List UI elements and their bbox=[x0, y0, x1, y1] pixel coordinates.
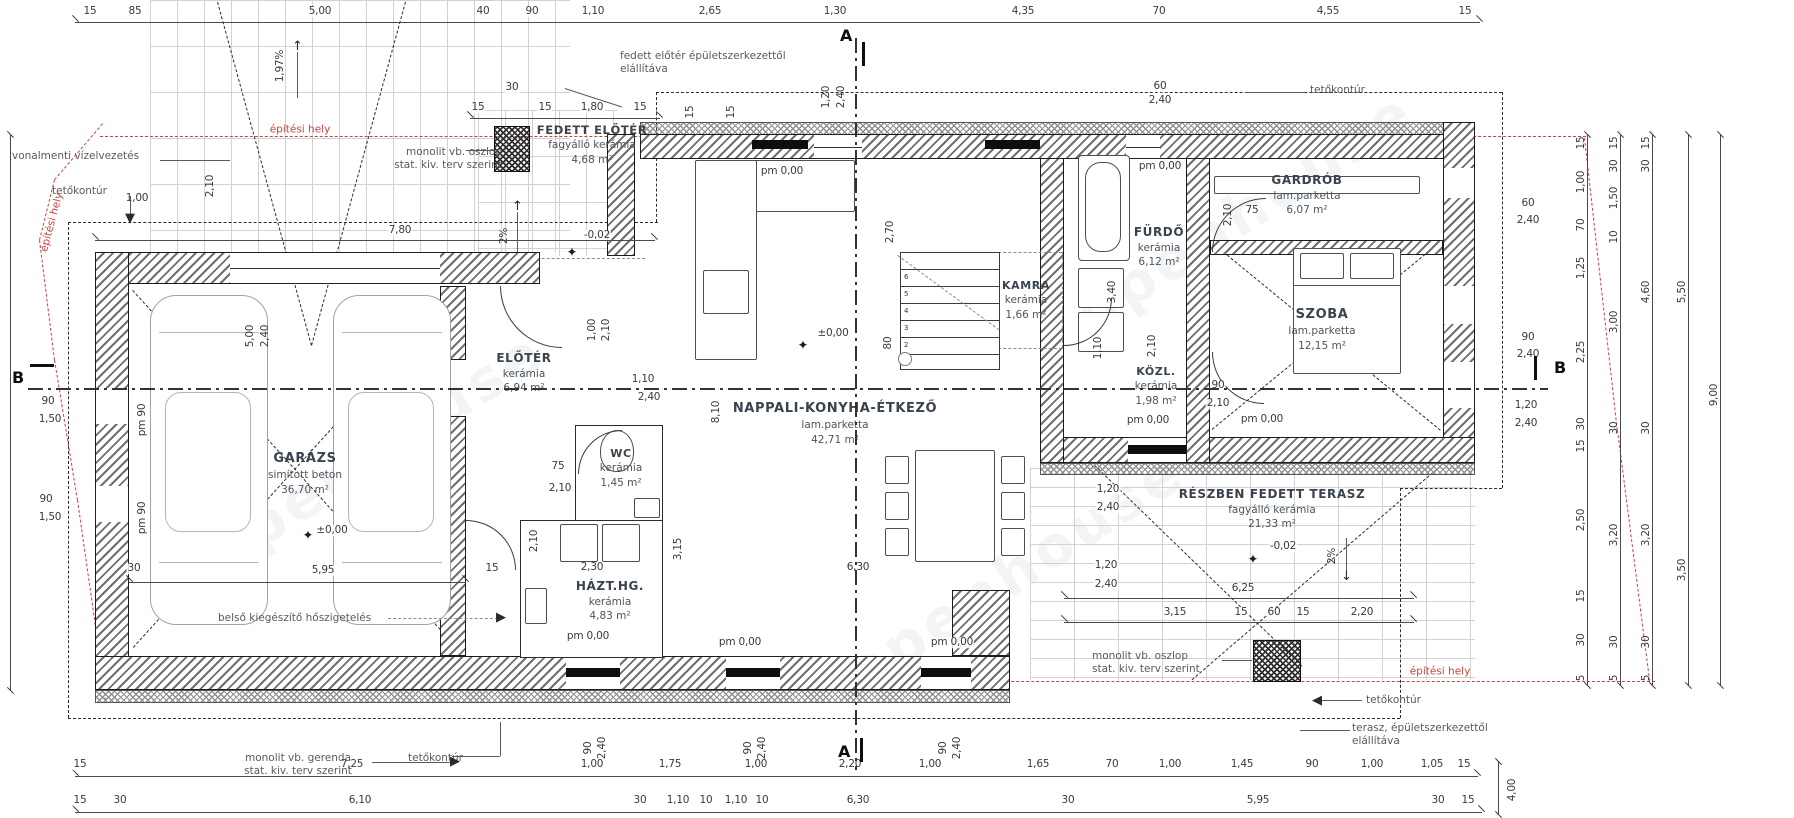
dim-label: 30 bbox=[1641, 160, 1652, 173]
dim-label: 1,10 bbox=[666, 795, 691, 806]
level-mark: pm 0,00 bbox=[718, 637, 762, 648]
dim-label: 5,95 bbox=[1246, 795, 1271, 806]
dim-label: 15 bbox=[1234, 607, 1249, 618]
dim-chain-garage bbox=[129, 582, 466, 583]
dryer bbox=[602, 524, 640, 562]
dim-label: 6,30 bbox=[846, 795, 871, 806]
dim-chain-right-1 bbox=[1587, 135, 1588, 685]
dim-label: 1,80 bbox=[580, 102, 605, 113]
dim-label: 6,25 bbox=[1231, 583, 1256, 594]
dim-label: 75 bbox=[1245, 205, 1260, 216]
dim-chain-top2 bbox=[470, 118, 660, 119]
dim-chain-right-2 bbox=[1620, 135, 1621, 685]
terrace-pillar bbox=[1253, 640, 1301, 682]
dim-label: 1,00 bbox=[587, 319, 598, 342]
dim-label: 3,40 bbox=[1107, 281, 1118, 304]
dim-label: 30 bbox=[1609, 160, 1620, 173]
level-mark: pm 0,00 bbox=[930, 637, 974, 648]
chair bbox=[1001, 456, 1025, 484]
dim-label: 1,00 bbox=[125, 193, 150, 204]
dim-label: 15 bbox=[538, 102, 553, 113]
dim-label: 2,70 bbox=[885, 221, 896, 244]
dim-label: 1,10 bbox=[631, 374, 656, 385]
annotation-roof-contour: tetőkontúr bbox=[1310, 84, 1365, 97]
dim-label: 1,00 bbox=[918, 759, 943, 770]
annotation-drainage: vonalmenti vízelvezetés bbox=[12, 150, 139, 163]
dim-label: 1,10 bbox=[581, 6, 606, 17]
dim-label: 2,20 bbox=[1350, 607, 1375, 618]
dim-label: 1,05 bbox=[1420, 759, 1445, 770]
dim-label: 2,10 bbox=[548, 483, 573, 494]
dim-label: 30 bbox=[127, 563, 142, 574]
dim-chain-400 bbox=[1498, 762, 1499, 814]
room-label-garage: GARÁZSsimított beton36,70 m² bbox=[268, 450, 342, 498]
insulation-szoba-south bbox=[1040, 463, 1475, 475]
dim-label: 2,40 bbox=[1096, 502, 1121, 512]
dim-label: 2,40 bbox=[952, 737, 963, 760]
dim-label: 5 bbox=[1609, 675, 1620, 681]
dim-label: 2,10 bbox=[205, 175, 216, 198]
dim-label: 2,40 bbox=[260, 325, 271, 348]
dim-label: 15 bbox=[1458, 6, 1473, 17]
chair bbox=[885, 492, 909, 520]
dim-label: 90 bbox=[1521, 332, 1536, 343]
dim-label: 3,20 bbox=[1641, 524, 1652, 547]
car-2 bbox=[333, 295, 451, 625]
dim-chain-right-5 bbox=[1720, 135, 1721, 685]
boiler bbox=[525, 588, 547, 624]
room-label-bathroom: FÜRDŐkerámia6,12 m² bbox=[1134, 224, 1184, 270]
dim-label: 85 bbox=[128, 6, 143, 17]
dim-label: 10 bbox=[1609, 231, 1620, 244]
dim-label: 1,50 bbox=[1609, 187, 1620, 210]
window-east-60 bbox=[1443, 168, 1475, 198]
lintel-south-3 bbox=[921, 668, 971, 677]
annotation-column-2: monolit vb. oszlopstat. kiv. terv szerin… bbox=[1092, 650, 1222, 676]
dim-label: 30 bbox=[113, 795, 128, 806]
dim-label: 15 bbox=[685, 106, 696, 119]
level-mark: pm 0,00 bbox=[1240, 414, 1284, 425]
dim-label: 1,20 bbox=[1514, 400, 1539, 411]
section-line-a bbox=[855, 38, 857, 770]
roof-contour bbox=[1400, 488, 1502, 489]
dim-chain-terrace-1 bbox=[1064, 598, 1414, 599]
window-north-60 bbox=[1126, 134, 1160, 159]
dim-label: 4,35 bbox=[1011, 6, 1036, 17]
kitchen-counter bbox=[695, 160, 757, 360]
door-arc-entry bbox=[500, 286, 562, 348]
washer bbox=[560, 524, 598, 562]
dim-label: 15 bbox=[1457, 759, 1472, 770]
annotation-beam: monolit vb. gerendastat. kiv. terv szeri… bbox=[228, 752, 368, 778]
level-mark: pm 90 bbox=[137, 404, 148, 437]
lintel-entry bbox=[752, 140, 808, 149]
room-label-gardrob: GARDRÓBlam.parketta6,07 m² bbox=[1271, 172, 1342, 218]
dim-label: 15 bbox=[1609, 137, 1620, 150]
dim-label: 70 bbox=[1576, 219, 1587, 232]
dim-label: 1,50 bbox=[38, 512, 63, 523]
dim-label: 2,40 bbox=[1094, 579, 1119, 590]
lintel-south-2 bbox=[726, 668, 780, 677]
level-mark: ±0,00 bbox=[315, 525, 348, 536]
dim-label: 40 bbox=[476, 6, 491, 17]
dim-label: 2,40 bbox=[757, 737, 768, 760]
chair bbox=[1001, 528, 1025, 556]
slope-label: 1,97% bbox=[275, 50, 286, 82]
dim-label: 15 bbox=[1576, 440, 1587, 453]
dim-label: 15 bbox=[83, 6, 98, 17]
dim-label: 2,40 bbox=[1516, 215, 1541, 226]
chair bbox=[1001, 492, 1025, 520]
dim-label: 30 bbox=[1641, 422, 1652, 435]
dim-label: 6,30 bbox=[846, 562, 871, 573]
level-mark: -0,02 bbox=[1269, 541, 1297, 552]
kitchen-sink bbox=[703, 270, 749, 314]
dim-label: 90 bbox=[583, 742, 594, 755]
insulation-south bbox=[95, 690, 1010, 703]
dim-label: 2,40 bbox=[836, 86, 847, 109]
dim-label: 3,50 bbox=[1677, 559, 1688, 582]
dim-chain-top bbox=[75, 22, 1480, 23]
dim-label: 30 bbox=[1609, 636, 1620, 649]
dim-label: 90 bbox=[1305, 759, 1320, 770]
dim-label: 15 bbox=[633, 102, 648, 113]
dim-label: 90 bbox=[938, 742, 949, 755]
dim-label: 30 bbox=[1576, 634, 1587, 647]
dim-label: 2,30 bbox=[580, 562, 605, 573]
dim-label: 5,00 bbox=[308, 6, 333, 17]
window-east-90 bbox=[1443, 286, 1475, 324]
room-label-covered-porch: FEDETT ELŐTÉRfagyálló kerámia4,68 m² bbox=[537, 122, 647, 167]
chair bbox=[885, 456, 909, 484]
stair-newel bbox=[898, 352, 912, 366]
dim-label: 3,00 bbox=[1609, 311, 1620, 334]
dim-label: 4,55 bbox=[1316, 6, 1341, 17]
lintel-bath-door bbox=[985, 140, 1040, 149]
dim-label: 70 bbox=[1105, 759, 1120, 770]
section-marker-a: A bbox=[838, 742, 850, 761]
dim-label: 2,10 bbox=[1147, 335, 1158, 358]
annotation-terrace-offset: terasz, épületszerkezettőlelállítáva bbox=[1352, 722, 1522, 748]
dim-label: 1,50 bbox=[38, 414, 63, 425]
lintel-south-1 bbox=[566, 668, 620, 677]
dim-label: 1,45 bbox=[1230, 759, 1255, 770]
room-label-pantry: KAMRAkerámia1,66 m² bbox=[1002, 278, 1050, 323]
dim-label: 5 bbox=[1641, 675, 1652, 681]
site-boundary-line bbox=[1584, 138, 1618, 430]
dim-label: 30 bbox=[1061, 795, 1076, 806]
section-marker-a: A bbox=[840, 26, 852, 45]
roof-contour bbox=[68, 718, 1400, 719]
wall-szoba-south bbox=[1040, 437, 1475, 463]
dim-label: 1,00 bbox=[580, 759, 605, 770]
dim-label: 3,20 bbox=[1609, 524, 1620, 547]
dim-label: 90 bbox=[743, 742, 754, 755]
slope-label: 2% bbox=[499, 228, 510, 244]
level-mark: pm 90 bbox=[137, 502, 148, 535]
site-boundary-label: építési hely bbox=[270, 123, 331, 136]
dining-table bbox=[915, 450, 995, 562]
dim-label: 15 bbox=[471, 102, 486, 113]
dim-label: 1,65 bbox=[1026, 759, 1051, 770]
dim-label: 1,10 bbox=[724, 795, 749, 806]
dim-label: 2,40 bbox=[1148, 95, 1173, 106]
room-label-wc: WCkerámia1,45 m² bbox=[600, 446, 643, 491]
dim-label: 15 bbox=[1576, 137, 1587, 150]
wall-south bbox=[95, 656, 1010, 690]
dim-label: 1,20 bbox=[1094, 560, 1119, 571]
dim-label: 90 bbox=[525, 6, 540, 17]
window-west-2 bbox=[95, 486, 129, 522]
dim-chain-bottom-2 bbox=[75, 812, 1482, 813]
dim-label: 2,65 bbox=[698, 6, 723, 17]
site-boundary-label: építési hely bbox=[1410, 665, 1471, 678]
level-mark: pm 0,00 bbox=[760, 166, 804, 177]
dim-label: 30 bbox=[633, 795, 648, 806]
annotation-insulation: belső kiegészítő hőszigetelés bbox=[218, 612, 371, 625]
dim-label: 3,15 bbox=[673, 538, 684, 561]
section-marker-b: B bbox=[1554, 358, 1566, 377]
dim-chain-right-3 bbox=[1652, 135, 1653, 685]
chair bbox=[885, 528, 909, 556]
dim-label: 15 bbox=[485, 563, 500, 574]
door-arc-szoba bbox=[1212, 352, 1264, 404]
dim-label: 15 bbox=[1641, 137, 1652, 150]
room-label-corridor: KÖZL.kerámia1,98 m² bbox=[1135, 364, 1178, 409]
bathtub bbox=[1078, 155, 1130, 261]
dim-label: 1,00 bbox=[1158, 759, 1183, 770]
dim-label: 15 bbox=[1461, 795, 1476, 806]
kamra-outline bbox=[1062, 252, 1063, 348]
dim-label: 1,75 bbox=[658, 759, 683, 770]
dim-label: 2,10 bbox=[1223, 204, 1234, 227]
roof-contour bbox=[656, 92, 1502, 93]
dim-label: 1,20 bbox=[821, 86, 832, 109]
level-mark: pm 0,00 bbox=[1126, 415, 1170, 426]
dim-label: 5,50 bbox=[1677, 281, 1688, 304]
dim-label: 90 bbox=[39, 494, 54, 505]
dim-label: 3,15 bbox=[1163, 607, 1188, 618]
section-marker-b: B bbox=[12, 368, 24, 387]
dim-label: 9,00 bbox=[1709, 384, 1720, 407]
dim-chain-right-4 bbox=[1688, 135, 1689, 685]
level-mark: pm 0,00 bbox=[1138, 161, 1182, 172]
annotation-roof-contour: tetőkontúr bbox=[1366, 694, 1421, 707]
dim-label: 2,10 bbox=[601, 319, 612, 342]
dim-label: 4,00 bbox=[1507, 779, 1518, 802]
dim-label: 7,80 bbox=[388, 225, 413, 236]
dim-label: 15 bbox=[73, 795, 88, 806]
room-label-living: NAPPALI-KONYHA-ÉTKEZŐlam.parketta42,71 m… bbox=[733, 400, 937, 448]
dim-label: 1,00 bbox=[1360, 759, 1385, 770]
dim-label: 75 bbox=[551, 461, 566, 472]
dim-label: 2,40 bbox=[1514, 418, 1539, 429]
annotation-porch-offset: fedett előtér épületszerkezettőlelállítá… bbox=[620, 50, 820, 76]
dim-label: 1,10 bbox=[1093, 337, 1104, 360]
room-label-bedroom: SZOBAlam.parketta12,15 m² bbox=[1288, 306, 1355, 354]
dim-label: 30 bbox=[505, 82, 520, 93]
dim-chain-780 bbox=[95, 240, 655, 241]
dim-label: 2,25 bbox=[1576, 341, 1587, 364]
dim-label: 5,95 bbox=[311, 565, 336, 576]
garage-door bbox=[230, 252, 440, 284]
hand-basin bbox=[634, 498, 660, 518]
dim-label: 90 bbox=[41, 396, 56, 407]
dim-label: 5,00 bbox=[245, 325, 256, 348]
dim-label: 2,10 bbox=[1206, 398, 1231, 409]
site-boundary-line bbox=[54, 360, 78, 500]
dim-label: 2,10 bbox=[529, 530, 540, 553]
floor-plan-canvas: openhouse openhouse openhouse építési he… bbox=[0, 0, 1794, 818]
dim-label: 10 bbox=[755, 795, 770, 806]
dim-label: 8,10 bbox=[711, 401, 722, 424]
level-mark: ±0,00 bbox=[816, 328, 849, 339]
dim-label: 4,60 bbox=[1641, 281, 1652, 304]
dim-label: 15 bbox=[1576, 590, 1587, 603]
dim-chain-left bbox=[10, 135, 11, 690]
wall-bath-east bbox=[1186, 158, 1210, 463]
dim-label: 30 bbox=[1431, 795, 1446, 806]
dim-label: 6,10 bbox=[348, 795, 373, 806]
dim-label: 5 bbox=[1576, 675, 1587, 681]
dim-label: 30 bbox=[1641, 636, 1652, 649]
dim-label: 10 bbox=[699, 795, 714, 806]
window-west-1 bbox=[95, 388, 129, 424]
dim-label: 70 bbox=[1152, 6, 1167, 17]
room-label-utility: HÁZT.HG.kerámia4,83 m² bbox=[576, 578, 644, 624]
dim-label: 30 bbox=[1576, 418, 1587, 431]
dim-chain-terrace-2 bbox=[1064, 622, 1414, 623]
dim-label: 80 bbox=[883, 337, 894, 350]
dim-label: 60 bbox=[1267, 607, 1282, 618]
dim-label: 2,40 bbox=[597, 737, 608, 760]
dim-label: 15 bbox=[73, 759, 88, 770]
dim-label: 30 bbox=[1609, 422, 1620, 435]
dim-label: 15 bbox=[726, 106, 737, 119]
dim-label: 60 bbox=[1153, 81, 1168, 92]
dim-label: 2,40 bbox=[637, 392, 662, 403]
dim-label: 15 bbox=[1296, 607, 1311, 618]
lintel-terrace-door bbox=[1128, 445, 1188, 454]
site-boundary-line bbox=[39, 240, 55, 360]
dim-label: 60 bbox=[1521, 198, 1536, 209]
annotation-roof-contour: tetőkontúr bbox=[52, 185, 107, 198]
section-line-b bbox=[28, 388, 1548, 390]
roof-contour bbox=[68, 222, 658, 223]
dim-label: 1,00 bbox=[1576, 171, 1587, 194]
dim-label: 1,20 bbox=[1096, 484, 1121, 495]
wall-west bbox=[95, 252, 129, 690]
dim-label: 1,30 bbox=[823, 6, 848, 17]
window-east-120 bbox=[1443, 362, 1475, 408]
level-mark: pm 0,00 bbox=[566, 631, 610, 642]
dim-label: 1,25 bbox=[1576, 257, 1587, 280]
room-label-terrace: RÉSZBEN FEDETT TERASZfagyálló kerámia21,… bbox=[1179, 486, 1366, 532]
dim-label: 2,50 bbox=[1576, 509, 1587, 532]
dim-label: 1,00 bbox=[744, 759, 769, 770]
roof-contour bbox=[1400, 488, 1401, 718]
roof-contour bbox=[68, 222, 69, 718]
slope-label: 2% bbox=[1327, 548, 1338, 564]
roof-contour bbox=[1502, 92, 1503, 488]
